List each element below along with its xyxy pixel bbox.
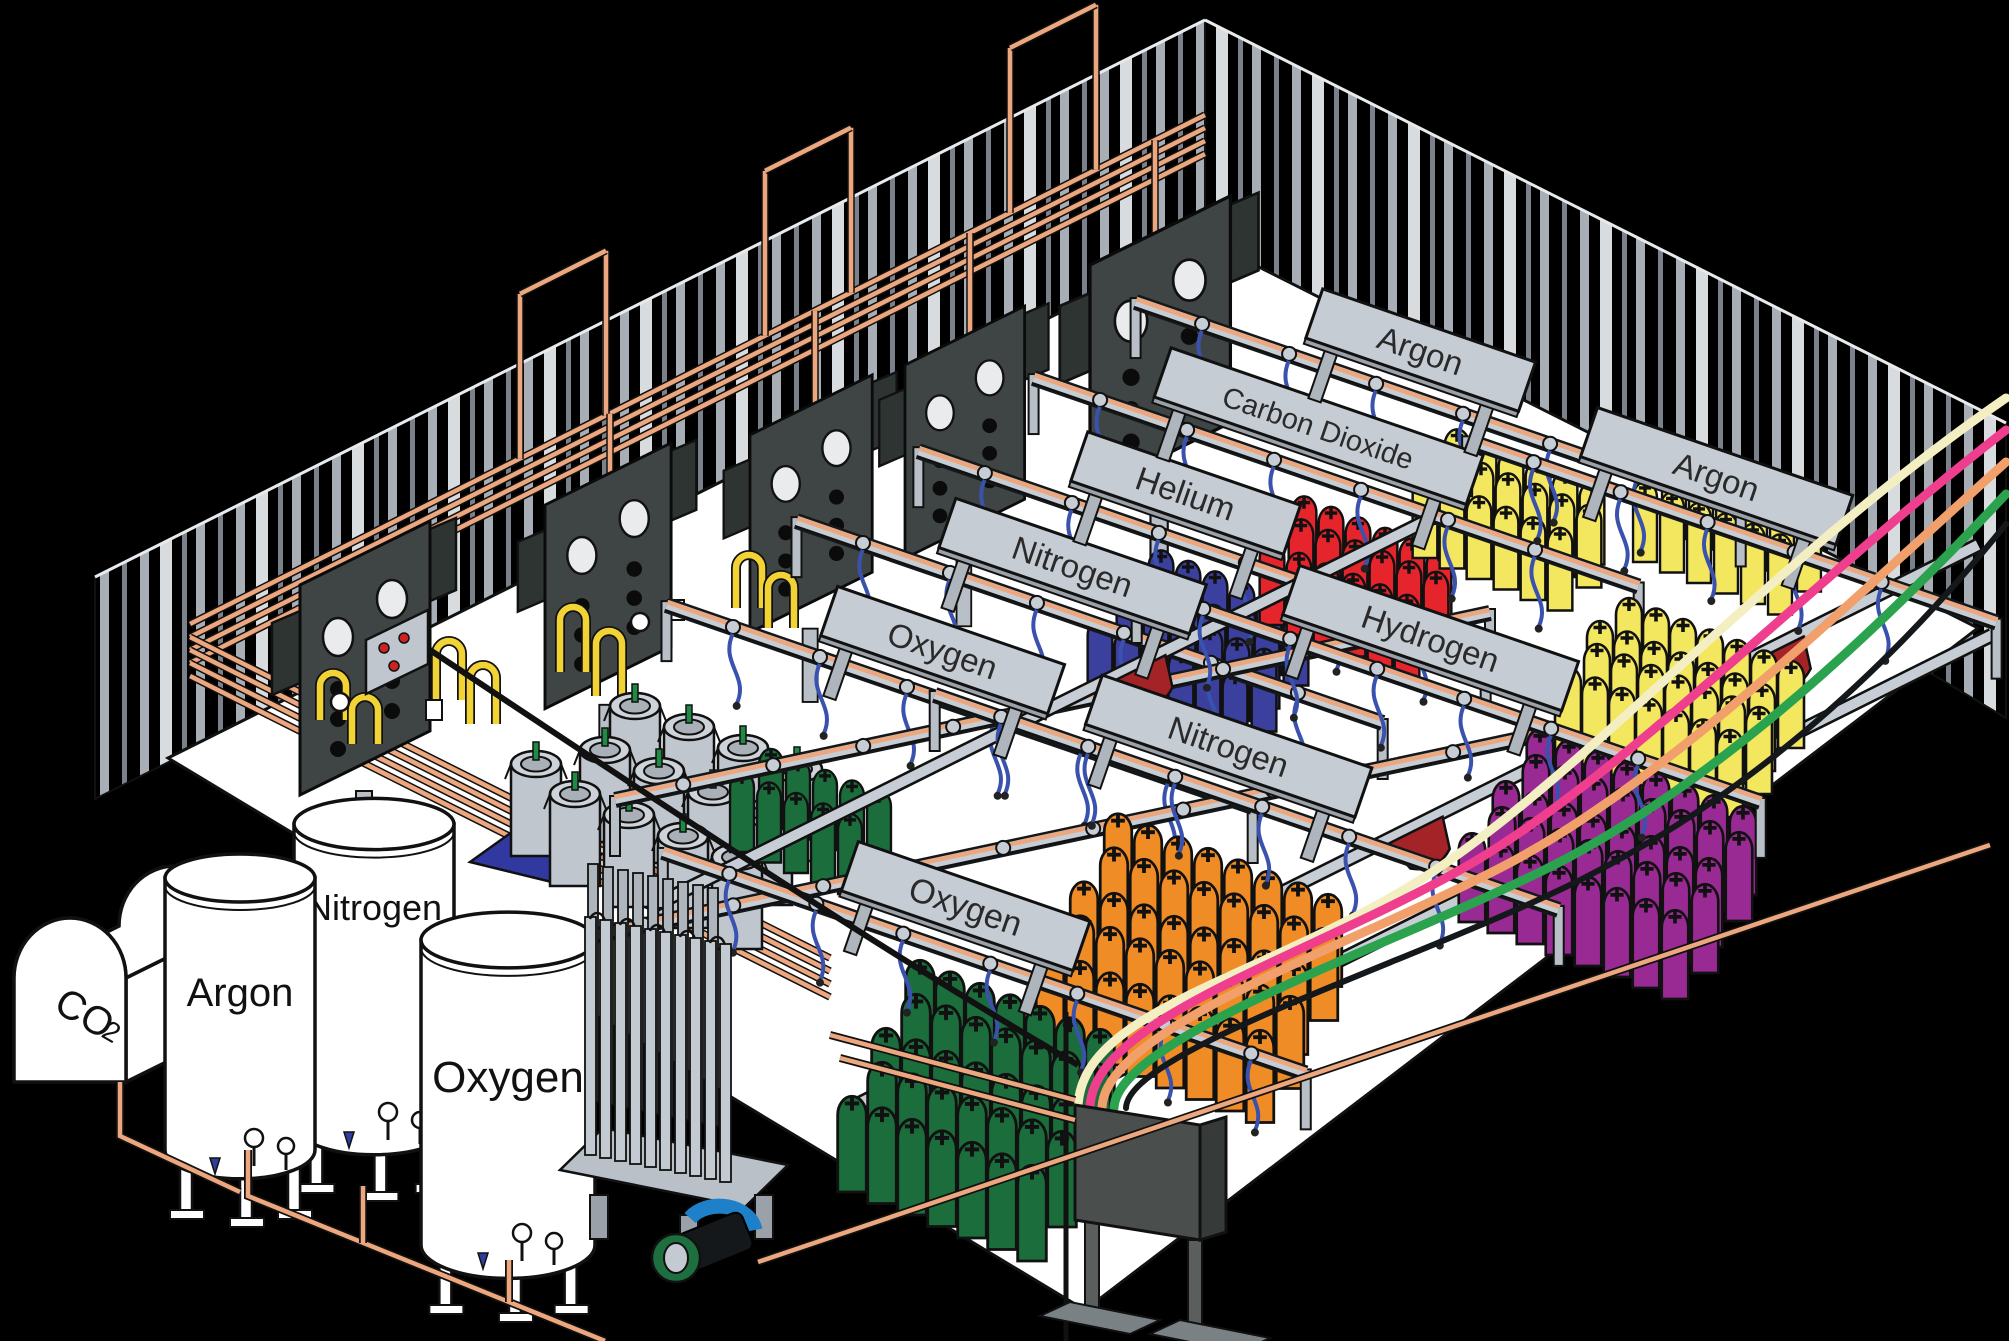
oxygen-tank-label: Oxygen bbox=[432, 1053, 584, 1102]
hose-connector-icon bbox=[1175, 852, 1183, 860]
gas-cylinder bbox=[838, 1096, 867, 1192]
hose-connector-icon bbox=[1707, 597, 1715, 605]
pressure-gauge-icon bbox=[620, 500, 649, 537]
tank-foot bbox=[300, 1184, 334, 1193]
tank-fitting-cap bbox=[379, 1103, 397, 1121]
gas-cylinder bbox=[1633, 899, 1660, 988]
hose-connector-icon bbox=[733, 702, 741, 710]
panel-wing bbox=[518, 530, 545, 611]
gas-cylinder bbox=[868, 1108, 897, 1204]
panel-leg bbox=[1085, 1222, 1099, 1314]
hose-connector-icon bbox=[1203, 684, 1211, 692]
argon-tank-label: Argon bbox=[187, 971, 294, 1015]
pump-motor-face bbox=[664, 1243, 688, 1273]
hose-connector-icon bbox=[1638, 834, 1646, 842]
vaporizer-tube bbox=[630, 926, 641, 1164]
vaporizer-tube bbox=[645, 929, 656, 1167]
port-dot-icon bbox=[384, 703, 400, 719]
tank-foot bbox=[364, 1192, 398, 1201]
hose-connector-icon bbox=[903, 1009, 911, 1017]
gas-cylinder bbox=[1575, 877, 1602, 966]
hose-connector-icon bbox=[1794, 627, 1802, 635]
panel-wing bbox=[1060, 293, 1090, 384]
hose-connector-icon bbox=[1419, 698, 1427, 706]
hose-connector-icon bbox=[1637, 549, 1645, 557]
panel-post bbox=[803, 629, 818, 702]
button-icon bbox=[389, 661, 399, 671]
panel-leg bbox=[1188, 1240, 1202, 1332]
panel-wing bbox=[724, 459, 750, 538]
hose-connector-icon bbox=[1361, 565, 1369, 573]
panel-wing bbox=[879, 389, 905, 466]
hose-connector-icon bbox=[1088, 822, 1096, 830]
panel-wing bbox=[1025, 303, 1049, 379]
tank-body bbox=[421, 940, 595, 1278]
port-dot-icon bbox=[933, 481, 948, 496]
port-dot-icon bbox=[829, 546, 844, 561]
hose-connector-icon bbox=[1535, 625, 1543, 633]
pressure-gauge-icon bbox=[926, 395, 954, 430]
tank-fitting-cap bbox=[245, 1129, 263, 1147]
vaporizer-tube bbox=[690, 938, 701, 1176]
hose-connector-icon bbox=[1001, 792, 1009, 800]
hose-connector-icon bbox=[1464, 774, 1472, 782]
pressure-gauge-icon bbox=[772, 466, 800, 502]
hose-connector-icon bbox=[1333, 668, 1341, 676]
hose-connector-icon bbox=[994, 792, 1002, 800]
port-dot-icon bbox=[626, 561, 642, 577]
gas-cylinder bbox=[1018, 1165, 1047, 1261]
hose-connector-icon bbox=[1262, 882, 1270, 890]
panel-body bbox=[1075, 1105, 1200, 1240]
panel-wing bbox=[272, 611, 300, 695]
gauge-icon bbox=[331, 693, 349, 711]
tank-fitting-cap bbox=[513, 1224, 531, 1242]
tank-body bbox=[165, 878, 315, 1179]
vaporizer-tube bbox=[600, 920, 611, 1158]
port-dot-icon bbox=[829, 490, 844, 505]
panel-wing bbox=[1230, 193, 1258, 283]
tank-foot bbox=[555, 1305, 589, 1314]
port-dot-icon bbox=[1122, 369, 1139, 386]
hose-connector-icon bbox=[820, 732, 828, 740]
port-dot-icon bbox=[982, 446, 997, 461]
hose-connector-icon bbox=[990, 1039, 998, 1047]
panel-side bbox=[1200, 1117, 1226, 1240]
pressure-gauge-icon bbox=[822, 430, 850, 466]
pressure-gauge-icon bbox=[323, 618, 353, 656]
pressure-gauge-icon bbox=[567, 537, 596, 574]
vaporizer-tube bbox=[660, 932, 671, 1170]
gas-cylinder bbox=[1726, 832, 1753, 921]
gas-cylinder bbox=[1604, 888, 1631, 977]
hose-connector-icon bbox=[1290, 714, 1298, 722]
pressure-gauge-icon bbox=[1173, 260, 1205, 301]
pressure-gauge-icon bbox=[377, 580, 407, 618]
nitrogen-tank-label: Nitrogen bbox=[306, 887, 442, 928]
vaporizer-tube bbox=[705, 941, 716, 1179]
tank-top bbox=[421, 912, 595, 968]
port-dot-icon bbox=[626, 590, 642, 606]
gas-plant-illustration: OxygenNitrogenHeliumCarbon DioxideArgonA… bbox=[0, 0, 2009, 1341]
gauge-icon bbox=[631, 613, 649, 631]
illustration-stage: OxygenNitrogenHeliumCarbon DioxideArgonA… bbox=[0, 0, 2009, 1341]
hose-connector-icon bbox=[1246, 638, 1254, 646]
pallet-leg bbox=[590, 1195, 608, 1239]
gas-cylinder bbox=[1246, 1030, 1274, 1122]
vaporizer-tube bbox=[675, 935, 686, 1173]
hose-connector-icon bbox=[1550, 519, 1558, 527]
port-dot-icon bbox=[933, 509, 948, 524]
gas-cylinder bbox=[1048, 1131, 1077, 1227]
pressure-gauge-icon bbox=[976, 360, 1004, 395]
gas-cylinder bbox=[1692, 884, 1719, 973]
port-dot-icon bbox=[982, 418, 997, 433]
button-icon bbox=[399, 633, 409, 643]
vaporizer-tube bbox=[615, 923, 626, 1161]
gas-cylinder bbox=[730, 772, 754, 852]
tank-top bbox=[165, 854, 315, 902]
tank-fitting-cap bbox=[278, 1138, 294, 1154]
tank-foot bbox=[170, 1210, 204, 1219]
tank-foot bbox=[499, 1313, 533, 1322]
junction-box bbox=[426, 700, 442, 720]
hose-connector-icon bbox=[1533, 537, 1541, 545]
hose-connector-icon bbox=[1251, 1128, 1259, 1136]
gas-cylinder bbox=[898, 1119, 927, 1215]
gas-cylinder bbox=[928, 1131, 957, 1227]
vaporizer-tube bbox=[720, 944, 731, 1182]
port-dot-icon bbox=[330, 741, 346, 757]
panel-wing bbox=[671, 440, 696, 521]
hose-connector-icon bbox=[1377, 744, 1385, 752]
tank-foot bbox=[230, 1218, 264, 1227]
tank-fitting-cap bbox=[546, 1233, 562, 1249]
hose-connector-icon bbox=[816, 979, 824, 987]
tank-top bbox=[294, 798, 454, 849]
hose-connector-icon bbox=[1164, 1099, 1172, 1107]
hose-connector-icon bbox=[1448, 595, 1456, 603]
tank-foot bbox=[429, 1305, 463, 1314]
gas-cylinder bbox=[988, 1154, 1017, 1250]
pallet-leg bbox=[755, 1195, 773, 1239]
button-icon bbox=[379, 643, 389, 653]
panel-wing bbox=[430, 518, 456, 601]
vaporizer-tube bbox=[585, 917, 596, 1155]
hose-connector-icon bbox=[1620, 567, 1628, 575]
